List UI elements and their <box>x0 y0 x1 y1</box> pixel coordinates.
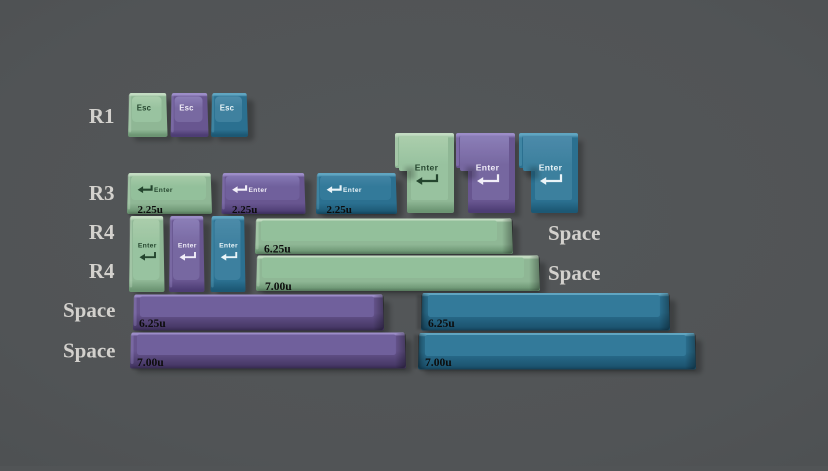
svg-text:R3: R3 <box>89 181 115 205</box>
svg-text:Enter: Enter <box>476 163 500 173</box>
svg-text:Enter: Enter <box>415 163 439 173</box>
svg-text:Esc: Esc <box>137 104 152 113</box>
svg-text:Enter: Enter <box>219 243 238 250</box>
svg-text:Space: Space <box>63 298 116 322</box>
svg-text:Esc: Esc <box>179 104 194 113</box>
svg-text:R4: R4 <box>89 259 115 283</box>
svg-text:Space: Space <box>548 261 601 285</box>
svg-text:7.00u: 7.00u <box>265 280 292 293</box>
svg-text:Enter: Enter <box>178 243 197 250</box>
svg-text:Space: Space <box>63 339 116 363</box>
svg-text:Esc: Esc <box>220 104 235 113</box>
svg-text:6.25u: 6.25u <box>139 317 166 330</box>
svg-text:6.25u: 6.25u <box>264 242 291 255</box>
svg-text:Enter: Enter <box>539 163 563 173</box>
svg-text:R1: R1 <box>89 104 115 128</box>
svg-text:Enter: Enter <box>154 187 173 194</box>
svg-text:R4: R4 <box>89 220 115 244</box>
svg-text:6.25u: 6.25u <box>428 317 455 330</box>
svg-text:7.00u: 7.00u <box>425 356 452 369</box>
svg-text:Enter: Enter <box>249 187 268 194</box>
svg-text:Enter: Enter <box>343 187 362 194</box>
svg-text:Enter: Enter <box>138 243 157 250</box>
svg-text:7.00u: 7.00u <box>137 356 164 369</box>
svg-text:Space: Space <box>548 221 601 245</box>
